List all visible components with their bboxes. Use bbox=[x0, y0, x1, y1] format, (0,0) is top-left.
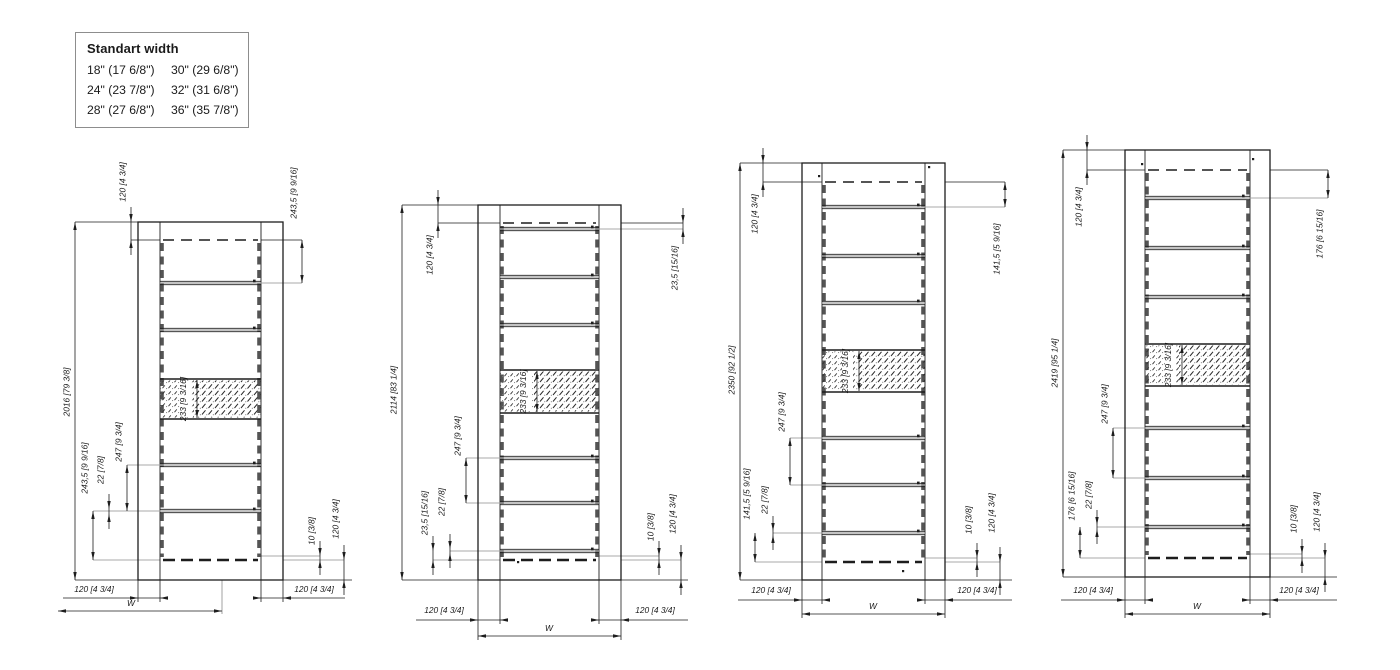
dimension-label: 247 [9 3/4] bbox=[453, 416, 463, 457]
hatch-fill-right bbox=[856, 352, 925, 391]
fastener-dot bbox=[1242, 425, 1245, 428]
dimension-arrow bbox=[318, 548, 321, 556]
legend-cell: 32" (31 6/8") bbox=[171, 80, 255, 100]
dimension-label: 120 [4 3/4] bbox=[635, 605, 675, 615]
dimension-arrow bbox=[1003, 182, 1006, 190]
dimension-arrow bbox=[1300, 546, 1303, 554]
fastener-dot bbox=[591, 500, 594, 503]
dimension-arrow bbox=[771, 523, 774, 531]
dimension-label: 23,5 [15/16] bbox=[670, 245, 680, 291]
dimension-arrow bbox=[1323, 550, 1326, 558]
dimension-arrow bbox=[1003, 199, 1006, 207]
dimension-arrow bbox=[431, 543, 434, 551]
dimension-arrow bbox=[400, 572, 403, 580]
dimension-arrow bbox=[975, 550, 978, 558]
fastener-dot bbox=[591, 226, 594, 229]
dimension-label: 247 [9 3/4] bbox=[777, 392, 787, 433]
dimension-arrow bbox=[1111, 470, 1114, 478]
dimension-arrow bbox=[1323, 577, 1326, 585]
dimension-label: 120 [4 3/4] bbox=[987, 493, 997, 533]
dimension-arrow bbox=[788, 477, 791, 485]
dimension-arrow bbox=[1117, 598, 1125, 601]
drawing-sheet: Standart width 18" (17 6/8")30" (29 6/8"… bbox=[0, 0, 1400, 670]
dimension-label: 120 [4 3/4] bbox=[1312, 492, 1322, 532]
dimension-arrow bbox=[129, 240, 132, 248]
fastener-dot bbox=[591, 455, 594, 458]
dimension-label: 120 [4 3/4] bbox=[425, 235, 435, 275]
dimension-arrow bbox=[300, 275, 303, 283]
dimension-arrow bbox=[58, 609, 66, 612]
fastener-dot bbox=[917, 253, 920, 256]
fastener-dot bbox=[253, 508, 256, 511]
dimension-label: 141,5 [5 9/16] bbox=[992, 223, 1002, 275]
dimension-arrow bbox=[761, 155, 764, 163]
dimension-label: 120 [4 3/4] bbox=[74, 584, 114, 594]
dimension-label: 10 [3/8] bbox=[646, 512, 656, 541]
fastener-dot bbox=[928, 166, 930, 168]
dimension-arrow bbox=[1262, 612, 1270, 615]
shelf-depth-label: 233 [9 3/16] bbox=[840, 348, 850, 394]
dimension-label: 22 [7/8] bbox=[760, 485, 770, 515]
dimension-label: 120 [4 3/4] bbox=[750, 194, 760, 234]
dimension-arrow bbox=[794, 598, 802, 601]
fastener-dot bbox=[591, 322, 594, 325]
dimension-arrow bbox=[1300, 558, 1303, 566]
dimension-arrow bbox=[342, 580, 345, 588]
hatch-fill-right bbox=[1179, 346, 1250, 385]
fastener-dot bbox=[917, 300, 920, 303]
fastener-dot bbox=[1242, 524, 1245, 527]
dimension-arrow bbox=[1095, 517, 1098, 525]
dimension-label: 10 [3/8] bbox=[307, 516, 317, 545]
dimension-arrow bbox=[73, 572, 76, 580]
hatched-shelf: 233 [9 3/16] bbox=[1145, 342, 1250, 388]
dimension-label: 247 [9 3/4] bbox=[114, 422, 124, 463]
hatched-shelf: 233 [9 3/16] bbox=[822, 348, 925, 394]
fastener-dot bbox=[591, 548, 594, 551]
dimension-arrow bbox=[436, 197, 439, 205]
dimension-label: 120 [4 3/4] bbox=[1073, 585, 1113, 595]
dimension-arrow bbox=[761, 182, 764, 190]
dimension-label: 10 [3/8] bbox=[1289, 504, 1299, 533]
ladder-drawing-rack-2419: 233 [9 3/16]2419 [95 1/4]120 [4 3/4]176 … bbox=[1050, 135, 1338, 618]
shelf-depth-label: 233 [9 3/16] bbox=[178, 376, 188, 422]
dimension-arrow bbox=[621, 618, 629, 621]
dimension-arrow bbox=[129, 214, 132, 222]
dimension-arrow bbox=[400, 205, 403, 213]
dimension-arrow bbox=[1111, 428, 1114, 436]
legend-title: Standart width bbox=[87, 41, 248, 56]
shelf-depth-label: 233 [9 3/16] bbox=[1163, 342, 1173, 388]
dimension-arrow bbox=[253, 596, 261, 599]
dimension-arrow bbox=[998, 580, 1001, 588]
dimension-arrow bbox=[431, 560, 434, 568]
dimension-arrow bbox=[998, 554, 1001, 562]
legend-rows: 18" (17 6/8")30" (29 6/8")24" (23 7/8")3… bbox=[87, 60, 248, 120]
dimension-arrow bbox=[436, 223, 439, 231]
dimension-arrow bbox=[478, 634, 486, 637]
hatch-fill-right bbox=[194, 381, 261, 418]
dimension-label: 120 [4 3/4] bbox=[424, 605, 464, 615]
dimension-label: 22 [7/8] bbox=[1084, 480, 1094, 510]
dimension-label: W bbox=[545, 623, 554, 633]
dimension-arrow bbox=[1326, 170, 1329, 178]
dimension-arrow bbox=[657, 548, 660, 556]
fastener-dot bbox=[591, 274, 594, 277]
standard-width-legend: Standart width 18" (17 6/8")30" (29 6/8"… bbox=[75, 32, 249, 128]
dimension-label: W bbox=[127, 598, 136, 608]
dimension-arrow bbox=[500, 618, 508, 621]
dimension-arrow bbox=[975, 562, 978, 570]
legend-cell: 30" (29 6/8") bbox=[171, 60, 255, 80]
dimension-label: 10 [3/8] bbox=[964, 505, 974, 534]
legend-cell: 28" (27 6/8") bbox=[87, 100, 171, 120]
dimension-arrow bbox=[464, 458, 467, 466]
fastener-dot bbox=[253, 327, 256, 330]
dimension-label: 120 [4 3/4] bbox=[294, 584, 334, 594]
fastener-dot bbox=[1242, 475, 1245, 478]
dimension-label: 2114 [83 1/4] bbox=[389, 365, 399, 415]
dimension-arrow bbox=[945, 598, 953, 601]
dimension-label: 22 [7/8] bbox=[96, 455, 106, 485]
dimension-arrow bbox=[107, 501, 110, 509]
dimension-label: 141,5 [5 9/16] bbox=[742, 468, 752, 520]
dimension-arrow bbox=[214, 609, 222, 612]
dimension-arrow bbox=[613, 634, 621, 637]
dimension-arrow bbox=[73, 222, 76, 230]
fastener-dot bbox=[1242, 245, 1245, 248]
fastener-dot bbox=[1252, 158, 1254, 160]
dimension-arrow bbox=[448, 541, 451, 549]
fastener-dot bbox=[917, 530, 920, 533]
dimension-arrow bbox=[470, 618, 478, 621]
dimension-arrow bbox=[1095, 529, 1098, 537]
dimension-arrow bbox=[917, 598, 925, 601]
dimension-arrow bbox=[657, 560, 660, 568]
dimension-label: 22 [7/8] bbox=[437, 487, 447, 517]
dimension-label: 247 [9 3/4] bbox=[1100, 384, 1110, 425]
dimension-arrow bbox=[318, 560, 321, 568]
dimension-arrow bbox=[1085, 170, 1088, 178]
dimension-arrow bbox=[738, 163, 741, 171]
fastener-dot bbox=[1242, 195, 1245, 198]
dimension-label: 120 [4 3/4] bbox=[1279, 585, 1319, 595]
dimension-arrow bbox=[771, 535, 774, 543]
ladder-drawing-rack-2350: 233 [9 3/16]2350 [92 1/2]120 [4 3/4]141,… bbox=[727, 148, 1013, 618]
dimension-arrow bbox=[125, 465, 128, 473]
dimension-arrow bbox=[1270, 598, 1278, 601]
dimension-arrow bbox=[1145, 598, 1153, 601]
dimension-label: 243,5 [9 9/16] bbox=[289, 167, 299, 220]
legend-cell: 18" (17 6/8") bbox=[87, 60, 171, 80]
dimension-arrow bbox=[300, 240, 303, 248]
dimension-arrow bbox=[822, 598, 830, 601]
dimension-arrow bbox=[448, 553, 451, 561]
fastener-dot bbox=[1141, 163, 1143, 165]
dimension-arrow bbox=[679, 552, 682, 560]
dimension-arrow bbox=[802, 612, 810, 615]
dimension-arrow bbox=[681, 229, 684, 237]
dimension-label: 2016 [79 3/8] bbox=[62, 367, 72, 418]
fastener-dot bbox=[253, 462, 256, 465]
dimension-label: 2350 [92 1/2] bbox=[727, 345, 737, 396]
hatch-fill-right bbox=[534, 372, 599, 412]
dimension-arrow bbox=[160, 596, 168, 599]
dimension-label: W bbox=[869, 601, 878, 611]
dimension-label: 243,5 [9 9/16] bbox=[80, 442, 90, 495]
dimension-label: W bbox=[1193, 601, 1202, 611]
dimension-arrow bbox=[1326, 190, 1329, 198]
fastener-dot bbox=[517, 561, 519, 563]
dimension-arrow bbox=[738, 572, 741, 580]
fastener-dot bbox=[1242, 294, 1245, 297]
dimension-arrow bbox=[91, 552, 94, 560]
dimension-arrow bbox=[1078, 527, 1081, 535]
ladder-drawing-rack-2016: 233 [9 3/16]2016 [79 3/8]120 [4 3/4]243,… bbox=[58, 162, 352, 614]
dimension-arrow bbox=[591, 618, 599, 621]
dimension-label: 176 [6 15/16] bbox=[1315, 209, 1325, 259]
dimension-arrow bbox=[125, 503, 128, 511]
fastener-dot bbox=[917, 204, 920, 207]
dimension-arrow bbox=[464, 495, 467, 503]
fastener-dot bbox=[917, 435, 920, 438]
dimension-arrow bbox=[1242, 598, 1250, 601]
dimension-arrow bbox=[283, 596, 291, 599]
legend-cell: 24" (23 7/8") bbox=[87, 80, 171, 100]
fastener-dot bbox=[917, 482, 920, 485]
dimension-arrow bbox=[1078, 550, 1081, 558]
dimension-arrow bbox=[788, 438, 791, 446]
dimension-arrow bbox=[679, 580, 682, 588]
dimension-arrow bbox=[91, 511, 94, 519]
dimension-arrow bbox=[1085, 142, 1088, 150]
dimension-arrow bbox=[107, 514, 110, 522]
dimension-label: 120 [4 3/4] bbox=[118, 162, 128, 202]
hatched-shelf: 233 [9 3/16] bbox=[160, 376, 261, 422]
dimension-label: 120 [4 3/4] bbox=[1074, 187, 1084, 227]
dimension-label: 120 [4 3/4] bbox=[751, 585, 791, 595]
dimension-arrow bbox=[753, 554, 756, 562]
dimension-arrow bbox=[681, 215, 684, 223]
shelf-depth-label: 233 [9 3/16] bbox=[518, 369, 528, 415]
fastener-dot bbox=[818, 175, 820, 177]
hatched-shelf: 233 [9 3/16] bbox=[500, 369, 599, 415]
dimension-label: 120 [4 3/4] bbox=[957, 585, 997, 595]
dimension-label: 176 [6 15/16] bbox=[1067, 471, 1077, 521]
ladder-drawing-rack-2114: 233 [9 3/16]2114 [83 1/4]120 [4 3/4]23,5… bbox=[389, 190, 689, 640]
dimension-label: 2419 [95 1/4] bbox=[1050, 338, 1060, 389]
dimension-arrow bbox=[1125, 612, 1133, 615]
dimension-label: 23,5 [15/16] bbox=[420, 490, 430, 536]
fastener-dot bbox=[253, 280, 256, 283]
dimension-label: 120 [4 3/4] bbox=[668, 494, 678, 534]
dimension-label: 120 [4 3/4] bbox=[331, 499, 341, 539]
legend-cell: 36" (35 7/8") bbox=[171, 100, 255, 120]
dimension-arrow bbox=[753, 533, 756, 541]
dimension-arrow bbox=[1061, 150, 1064, 158]
dimension-arrow bbox=[342, 552, 345, 560]
dimension-arrow bbox=[937, 612, 945, 615]
fastener-dot bbox=[902, 570, 904, 572]
dimension-arrow bbox=[1061, 569, 1064, 577]
